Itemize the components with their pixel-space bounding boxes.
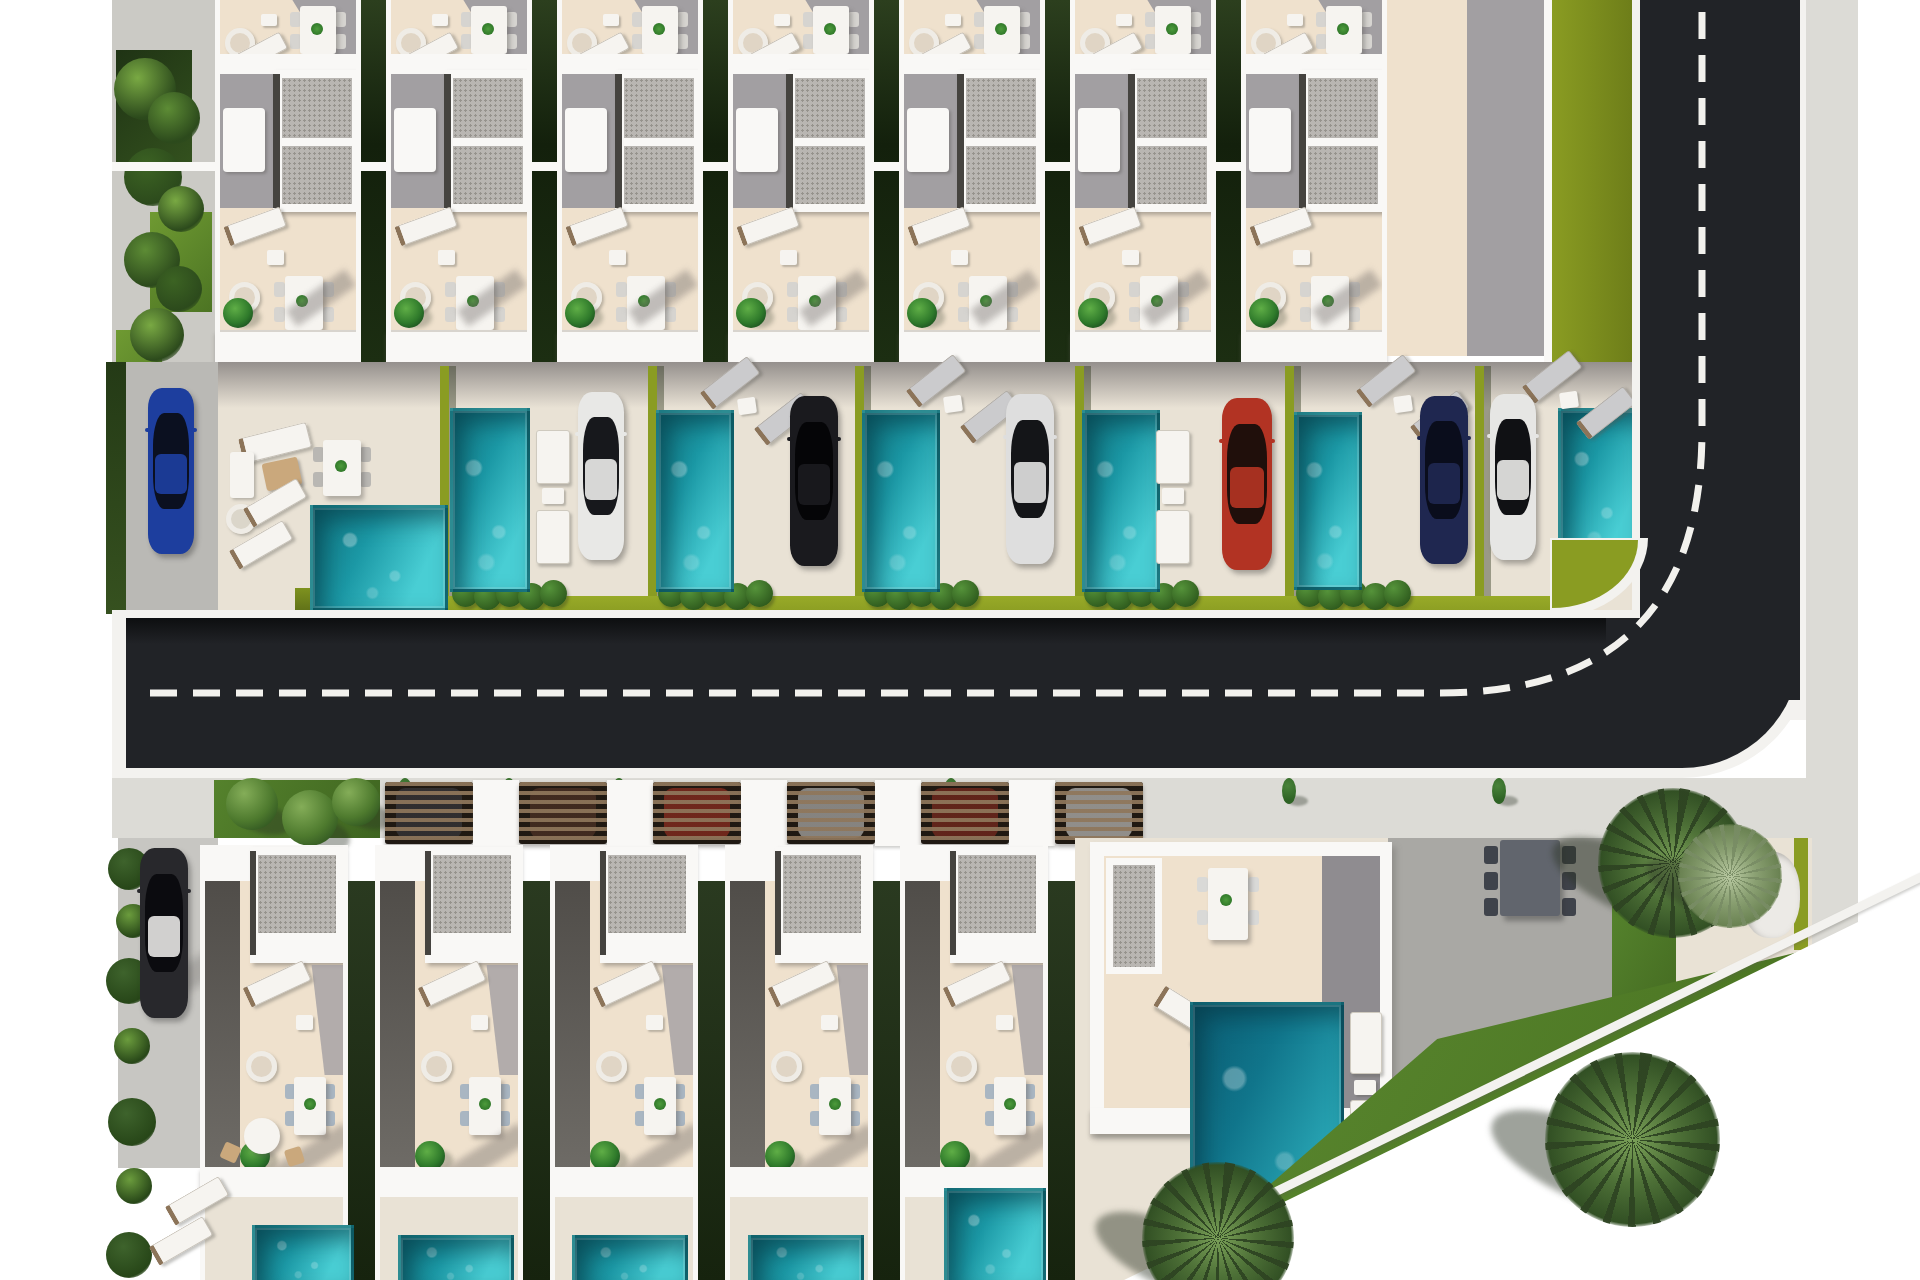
party-wall [874,162,899,171]
chair [274,282,285,297]
chair [1349,307,1360,322]
round-chair [946,1051,977,1082]
car-mirror [1269,439,1275,443]
chair [1019,12,1030,27]
wall-edge [1070,0,1075,362]
facade [215,330,361,364]
skylight-panel [795,78,865,138]
stair-slab [394,108,436,172]
car-mirror [835,437,841,441]
chair [616,307,627,322]
skylight-panel [1137,78,1207,138]
stair-slab [1078,108,1120,172]
skylight [425,847,519,963]
skylight-edge [444,74,451,208]
potted-plant [1249,298,1279,328]
chair [616,282,627,297]
chair [787,307,798,322]
chair [1019,34,1030,49]
skylight [775,847,869,963]
skylight [615,70,703,212]
skylight-edge [1128,74,1135,208]
chair [1484,846,1498,864]
chair [848,12,859,27]
skylight-panel [783,855,861,933]
chair [1361,12,1372,27]
palm-tree [1545,1052,1720,1227]
driveway-hedge [106,362,126,614]
villa [200,845,348,1280]
tree [282,790,338,846]
black-white-car [1490,394,1536,560]
lounger [417,960,486,1008]
silver-car [1006,394,1054,564]
hedge-bush [746,580,773,607]
wall-edge [550,845,555,1280]
lounger [1156,430,1190,484]
chair [1178,307,1189,322]
stair-slab [223,108,265,172]
lot-gap [1048,881,1075,1280]
hedge-divider [1045,0,1070,362]
lounger [907,206,971,246]
side-table [943,395,963,413]
cypress-bush [1282,778,1296,804]
roof-dark-strip [550,881,590,1169]
potted-plant [1078,298,1108,328]
potted-plant [223,298,253,328]
skylight-panel [795,146,865,204]
lounger [565,206,629,246]
side-table [1393,395,1413,413]
side-table [603,14,619,26]
skylight-edge [273,74,280,208]
car-mirror [145,428,151,432]
lounger [1156,510,1190,564]
chair [1361,34,1372,49]
lounger [536,430,570,484]
stair-slab [736,108,778,172]
lot-gap [523,881,550,1280]
villa [550,845,698,1280]
navy-suv [1420,396,1468,564]
chair [677,12,688,27]
roof-dark-strip [200,881,240,1169]
entry-canopy [607,780,653,846]
roof-dark-strip [375,881,415,1169]
blue-car [148,388,194,554]
wall-edge [899,0,904,362]
pergola-carport [653,782,741,844]
skylight [1106,858,1162,974]
skylight-panel [453,146,523,204]
skylight-edge [425,851,431,955]
pergola-slats [385,782,473,844]
chair [1007,307,1018,322]
yard-divider [1475,366,1484,614]
hedge-divider [532,0,557,362]
pergola-carport [1055,782,1143,844]
pool [1082,410,1160,592]
roof-terrace [1387,0,1467,356]
car-mirror [137,889,143,893]
pool [572,1235,688,1280]
foliage [148,92,200,144]
entry-canopy [1009,780,1055,846]
wall-edge [215,0,220,362]
pergola-carport [921,782,1009,844]
car-mirror [1417,436,1423,440]
side-table [1293,250,1310,265]
car-roof [798,464,831,505]
wall-edge [900,845,905,1280]
car-mirror [1003,435,1009,439]
round-chair [421,1051,452,1082]
sidewalk [1806,0,1858,952]
roof-dark-strip [900,881,940,1169]
chair [360,472,371,487]
side-table [609,250,626,265]
black-suv [790,396,838,566]
side-table [296,1015,313,1030]
chair [1129,282,1140,297]
car-roof [1230,467,1264,508]
party-wall [532,162,557,171]
chair [323,307,334,322]
side-table [1287,14,1303,26]
lot-gap [348,881,375,1280]
car-roof [1014,462,1047,503]
chair [360,447,371,462]
chair [1129,307,1140,322]
skylight [273,70,361,212]
villa [899,0,1045,362]
chair [1484,872,1498,890]
table-plant [304,1098,316,1110]
skylight-panel [433,855,511,933]
side-table [1116,14,1132,26]
roof-gray [1467,0,1545,356]
car-mirror [1533,434,1539,438]
skylight-edge [950,851,956,955]
hedge-divider [361,0,386,362]
pergola-carport [787,782,875,844]
villa [215,0,361,362]
cypress-bush [1492,778,1506,804]
round-chair [246,1051,277,1082]
hedge-divider [874,0,899,362]
chair [1197,910,1208,925]
villa [1070,0,1216,362]
table-plant [1004,1098,1016,1110]
chair [274,307,285,322]
chair [1562,898,1576,916]
pergola-slats [921,782,1009,844]
chair [1484,898,1498,916]
chair [958,282,969,297]
table-plant [479,1098,491,1110]
side-table [432,14,448,26]
road-shadow [126,618,1606,644]
skylight-panel [966,78,1036,138]
pool [862,410,940,592]
skylight [957,70,1045,212]
wall [112,162,218,171]
chair [445,307,456,322]
pergola-slats [519,782,607,844]
palm-tree [1678,824,1782,928]
skylight-panel [624,146,694,204]
skylight-panel [966,146,1036,204]
skylight-panel [624,78,694,138]
tree [226,778,278,830]
skylight-edge [775,851,781,955]
wall-edge [386,0,391,362]
party-wall [361,162,386,171]
stair-slab [907,108,949,172]
ivy-foliage [114,1028,150,1064]
chair [1197,877,1208,892]
skylight-edge [600,851,606,955]
patio-table [1500,840,1560,916]
entry-canopy [473,780,519,846]
car-mirror [787,437,793,441]
facade [550,1167,698,1197]
side-table [1162,488,1184,504]
foliage [158,186,204,232]
side-table [267,250,284,265]
pergola-carport [385,782,473,844]
hedge-bush [540,580,567,607]
skylight-edge [250,851,256,955]
car-mirror [575,432,581,436]
facade [1070,330,1216,364]
foliage [130,308,184,362]
skylight-panel [958,855,1036,933]
skylight-edge [615,74,622,208]
pool [656,410,734,592]
chair [1248,910,1259,925]
potted-plant [394,298,424,328]
hedge-divider [1216,0,1241,362]
lounger [394,206,458,246]
pool [450,408,530,592]
chair [335,12,346,27]
villa [728,0,874,362]
skylight-panel [1113,865,1155,967]
lounger [1249,206,1313,246]
round-chair [771,1051,802,1082]
car-mirror [1219,439,1225,443]
pool [398,1235,514,1280]
side-table [780,250,797,265]
skylight [250,847,344,963]
car-roof [1428,463,1461,503]
hedge-bush [1172,580,1199,607]
round-table [244,1118,280,1154]
wall-edge [557,0,562,362]
side-table [951,250,968,265]
side-table [542,488,564,504]
table-plant [654,1098,666,1110]
skylight-panel [608,855,686,933]
villa [557,0,703,362]
parked-car [140,848,188,1018]
pool [748,1235,864,1280]
lounger [942,960,1011,1008]
lounger [736,206,800,246]
skylight [1128,70,1216,212]
skylight-edge [786,74,793,208]
side-table [1559,391,1579,409]
skylight-panel [258,855,336,933]
wall-edge [200,845,205,1280]
chair [1248,877,1259,892]
hedge-bush [952,580,979,607]
pergola-slats [1055,782,1143,844]
chair [836,307,847,322]
skylight [950,847,1044,963]
lounger [242,960,311,1008]
ivy-foliage [106,1232,152,1278]
chair [665,307,676,322]
wall-edge [375,845,380,1280]
chair [848,34,859,49]
lounger [223,206,287,246]
skylight [786,70,874,212]
facade [557,330,703,364]
facade [899,330,1045,364]
red-car [1222,398,1272,570]
chair [1300,307,1311,322]
ivy-foliage [116,1168,152,1204]
hedge-bush [1384,580,1411,607]
car-mirror [191,428,197,432]
car-mirror [1487,434,1493,438]
lounger [592,960,661,1008]
entry-canopy [741,780,787,846]
skylight-edge [1299,74,1306,208]
chair [787,282,798,297]
lounger [767,960,836,1008]
chair [445,282,456,297]
lounger [1078,206,1142,246]
side-table [737,397,757,415]
facade [1241,330,1387,364]
skylight-panel [1308,78,1378,138]
skylight-panel [282,78,352,138]
table-plant [829,1098,841,1110]
skylight [600,847,694,963]
villa [386,0,532,362]
stair-slab [565,108,607,172]
pergola-carport [519,782,607,844]
side-table [646,1015,663,1030]
villa [725,845,873,1280]
pool [944,1188,1046,1280]
chair [506,34,517,49]
stair-slab [1249,108,1291,172]
side-table [996,1015,1013,1030]
white-car [578,392,624,560]
car-roof [155,454,186,494]
chair [494,307,505,322]
lot-gap [698,881,725,1280]
side-table [821,1015,838,1030]
side-table [1354,1080,1376,1095]
hedge-divider [703,0,728,362]
car-mirror [1051,435,1057,439]
yard-divider [1285,366,1294,614]
skylight [444,70,532,212]
wall-edge [1241,0,1246,362]
round-chair [596,1051,627,1082]
chair [1190,34,1201,49]
car-roof [148,916,181,957]
table-plant [1220,894,1232,906]
ivy-foliage [108,1098,156,1146]
roof-dark-strip [725,881,765,1169]
pool [310,505,448,611]
pool [252,1225,354,1280]
party-wall [1045,162,1070,171]
side-table [774,14,790,26]
chair [677,34,688,49]
pool [1294,412,1362,590]
side-table [438,250,455,265]
facade [386,330,532,364]
chair [1300,282,1311,297]
facade [375,1167,523,1197]
skylight-panel [453,78,523,138]
table-plant [335,460,347,472]
potted-plant [736,298,766,328]
potted-plant [907,298,937,328]
facade [725,1167,873,1197]
villa [1241,0,1387,362]
pergola-slats [653,782,741,844]
road [1640,0,1800,700]
side-table [1122,250,1139,265]
car-roof [1497,460,1528,500]
skylight-panel [1308,146,1378,204]
car-roof [585,459,616,499]
chair [1190,12,1201,27]
villa [375,845,523,1280]
lot-gap [873,881,900,1280]
skylight-panel [282,146,352,204]
side-table [471,1015,488,1030]
wall-edge [728,0,733,362]
lounger [1350,1012,1382,1074]
lounger [536,510,570,564]
entry-canopy [875,780,921,846]
car-mirror [185,889,191,893]
chair [506,12,517,27]
skylight-edge [957,74,964,208]
foliage [156,266,202,312]
skylight-panel [1137,146,1207,204]
site-plan-render [0,0,1920,1280]
party-wall [1216,162,1241,171]
potted-plant [565,298,595,328]
skylight [1299,70,1387,212]
tree [332,778,380,826]
chair [335,34,346,49]
wall-edge [725,845,730,1280]
side-table [945,14,961,26]
side-table [261,14,277,26]
